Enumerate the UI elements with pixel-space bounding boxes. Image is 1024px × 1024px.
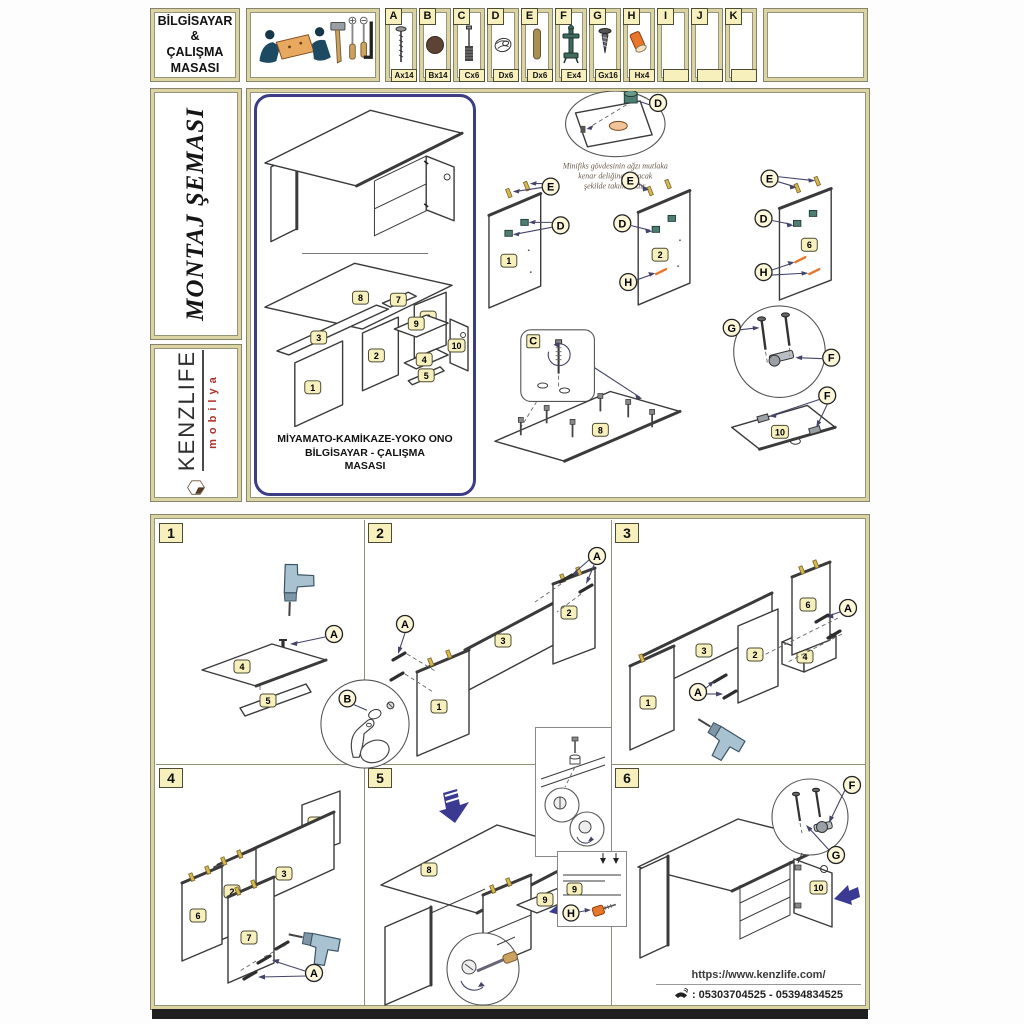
part-qty [663, 69, 689, 82]
drill-icon [282, 922, 342, 970]
part-box-k: K [725, 8, 757, 82]
panel-badge: 2 [566, 608, 571, 618]
part-letter: H [623, 8, 640, 25]
product-overview-panel: 8 3 1 7 2 6 9 4 5 10 [254, 94, 476, 496]
shelf-screw-detail-box: 9 H [557, 851, 627, 927]
panel-badge: 9 [542, 895, 547, 905]
part-qty: Cx6 [459, 69, 485, 82]
callout-letter: H [624, 277, 632, 289]
part-qty: Ax14 [391, 69, 417, 82]
sheet-bottom-bar [152, 1009, 868, 1019]
callout-letter: D [654, 98, 662, 110]
panel-badge: 5 [265, 696, 270, 706]
part-qty: Dx6 [493, 69, 519, 82]
step-3-diagram: 3 1 2 4 6 A A [612, 520, 866, 764]
website-url: https://www.kenzlife.com/ [656, 969, 861, 985]
callout-letter: H [760, 267, 768, 279]
brand-name: KENZLIFE [174, 350, 204, 471]
part-letter: J [691, 8, 708, 25]
assembled-desk-drawing [257, 97, 471, 247]
callout-letter: D [557, 220, 565, 232]
minifix-detail: D Minifiks gövdesinin ağzı mutlaka kenar… [562, 91, 668, 191]
step-number: 1 [159, 523, 183, 543]
callout-letter: A [844, 603, 852, 615]
callout-letter: A [401, 619, 409, 631]
tools-illustration-box [246, 8, 380, 82]
part-qty: Gx16 [595, 69, 621, 82]
close-arrow [834, 885, 860, 905]
note-line: Minifiks gövdesinin ağzı mutlaka [562, 162, 668, 171]
drill-icon [277, 562, 318, 619]
brand-subtitle: mobilya [207, 350, 219, 471]
assembly-sheet: BİLGİSAYAR & ÇALIŞMA MASASI [150, 8, 872, 1020]
panel-2-prep: E D 2 H [614, 172, 690, 305]
hinge-screw-detail: G F [723, 306, 839, 398]
callout-letter: A [593, 551, 601, 563]
part-qty: Hx4 [629, 69, 655, 82]
carried-panel [276, 35, 314, 59]
panel-badge: 10 [452, 341, 462, 351]
panel-badge: 9 [572, 885, 577, 895]
preparation-diagrams: D Minifiks gövdesinin ağzı mutlaka kenar… [481, 91, 869, 499]
step-number: 3 [615, 523, 639, 543]
chipboard-screw-icon [592, 22, 618, 68]
panel-badge: 1 [436, 702, 441, 712]
step-4-cell: 4 1 3 2 6 7 [156, 765, 364, 1006]
panel-badge: 6 [195, 911, 200, 921]
panel-badge: 4 [422, 355, 427, 365]
callout-letter: E [766, 174, 773, 186]
part-box-a: A Ax14 [385, 8, 417, 82]
cam-bolt-icon [456, 22, 482, 68]
panel-6-prep: E D 6 H [755, 170, 831, 300]
panel-badge: 8 [358, 293, 363, 303]
part-letter: D [487, 8, 504, 25]
part-qty: Bx14 [425, 69, 451, 82]
part-letter: B [419, 8, 436, 25]
panel-badge: 7 [246, 933, 251, 943]
panel-badge: 2 [374, 351, 379, 361]
callout-letter: A [694, 687, 702, 699]
callout-letter: G [727, 323, 736, 335]
part-box-f: F Ex4 [555, 8, 587, 82]
step-6-cell: 6 10 [612, 765, 866, 1006]
part-letter: G [589, 8, 606, 25]
callout-letter: E [627, 176, 634, 188]
cam-lock-icon [490, 22, 516, 68]
flat-screwdriver-icon [360, 17, 367, 57]
panel-badge: 3 [281, 869, 286, 879]
phone-numbers: : 05303704525 - 05394834525 [692, 989, 843, 1001]
wood-dowel-icon [524, 22, 550, 68]
product-title-line: ÇALIŞMA [158, 45, 233, 61]
panel-badge: 3 [316, 333, 321, 343]
part-box-g: G Gx16 [589, 8, 621, 82]
part-box-c: C Cx6 [453, 8, 485, 82]
part-box-i: I [657, 8, 689, 82]
divider [302, 253, 427, 254]
assembly-steps-grid: 1 4 5 A [150, 514, 870, 1010]
panel-badge: 6 [805, 600, 810, 610]
panel-badge: 1 [506, 256, 511, 266]
panel-badge: 3 [500, 636, 505, 646]
empty-parts-box [763, 8, 868, 82]
drill-icon [686, 709, 746, 764]
part-letter: A [385, 8, 402, 25]
contact-footer: https://www.kenzlife.com/ : 05303704525 … [656, 969, 861, 1001]
phone-icon [674, 988, 688, 1001]
part-box-e: E Dx6 [521, 8, 553, 82]
phillips-screwdriver-icon [349, 17, 356, 59]
callout-letter: H [567, 908, 575, 920]
product-title-line: & [158, 29, 233, 45]
schema-title: MONTAJ ŞEMASI [182, 107, 210, 321]
part-qty: Ex4 [561, 69, 587, 82]
down-arrow [439, 789, 469, 823]
callout-letter: A [310, 968, 318, 980]
callout-letter: F [824, 390, 831, 402]
schema-title-box: MONTAJ ŞEMASI [150, 88, 242, 340]
hammer-icon [331, 22, 345, 62]
part-letter: F [555, 8, 572, 25]
part-letter: K [725, 8, 742, 25]
panel-badge: 7 [396, 295, 401, 305]
panel-badge: 2 [752, 650, 757, 660]
callout-letter: B [343, 693, 351, 705]
cover-cap-icon [422, 22, 448, 68]
callout-letter: E [547, 182, 554, 194]
callout-letter: G [832, 850, 841, 862]
panel-8-prep: 8 [495, 392, 680, 462]
kenzlife-logo-icon [174, 479, 218, 496]
panel-badge: 8 [598, 425, 603, 435]
step-number: 6 [615, 768, 639, 788]
step-3-cell: 3 3 1 2 4 6 A [612, 520, 866, 764]
overview-box: 8 3 1 7 2 6 9 4 5 10 [246, 88, 870, 502]
minifix-lock-detail-box [535, 727, 612, 857]
part-letter: C [453, 8, 470, 25]
part-letter: E [521, 8, 538, 25]
part-box-j: J [691, 8, 723, 82]
panel-badge: 10 [813, 883, 823, 893]
panel-badge: 10 [775, 427, 785, 437]
cap-press-detail-bubble: B [318, 677, 412, 771]
part-letter: I [657, 8, 674, 25]
part-qty [731, 69, 757, 82]
panel-badge: 3 [701, 646, 706, 656]
bolt-screw-icon [388, 22, 414, 68]
part-box-b: B Bx14 [419, 8, 451, 82]
panel-badge: 5 [424, 371, 429, 381]
hinge-icon [558, 22, 584, 68]
panel-1-prep: E D 1 [489, 178, 569, 308]
callout-letter: C [529, 336, 537, 348]
part-box-h: H Hx4 [623, 8, 655, 82]
panel-badge: 4 [239, 662, 244, 672]
note-line: kenar deliğine bakacak [578, 172, 653, 181]
part-box-d: D Dx6 [487, 8, 519, 82]
part-qty [697, 69, 723, 82]
panel-badge: 1 [645, 698, 650, 708]
step-number: 4 [159, 768, 183, 788]
product-title-line: BİLGİSAYAR [158, 14, 233, 30]
model-name-line: BİLGİSAYAR - ÇALIŞMA [257, 447, 473, 461]
step-4-diagram: 1 3 2 6 7 [156, 765, 364, 1006]
callout-letter: A [330, 629, 338, 641]
panel-badge: 1 [310, 383, 315, 393]
panel-badge: 8 [426, 865, 431, 875]
panel-badge: 9 [414, 319, 419, 329]
panel-badge: 4 [802, 652, 807, 662]
model-name-line: MASASI [257, 460, 473, 474]
plastic-cap-icon [626, 22, 652, 68]
panel-badge: 6 [807, 240, 812, 250]
callout-letter: F [849, 780, 856, 792]
step-number: 2 [368, 523, 392, 543]
callout-letter: F [828, 353, 835, 365]
exploded-view-drawing: 8 3 1 7 2 6 9 4 5 10 [257, 255, 471, 427]
part-qty: Dx6 [527, 69, 553, 82]
tools-illustration [251, 14, 375, 76]
model-name-line: MİYAMATO-KAMİKAZE-YOKO ONO [257, 433, 473, 447]
brand-logo-box: KENZLIFE mobilya [150, 344, 242, 502]
panel-badge: 2 [658, 250, 663, 260]
product-title-box: BİLGİSAYAR & ÇALIŞMA MASASI [150, 8, 240, 82]
callout-letter: D [618, 218, 626, 230]
product-title-line: MASASI [158, 61, 233, 77]
callout-letter: D [760, 213, 768, 225]
